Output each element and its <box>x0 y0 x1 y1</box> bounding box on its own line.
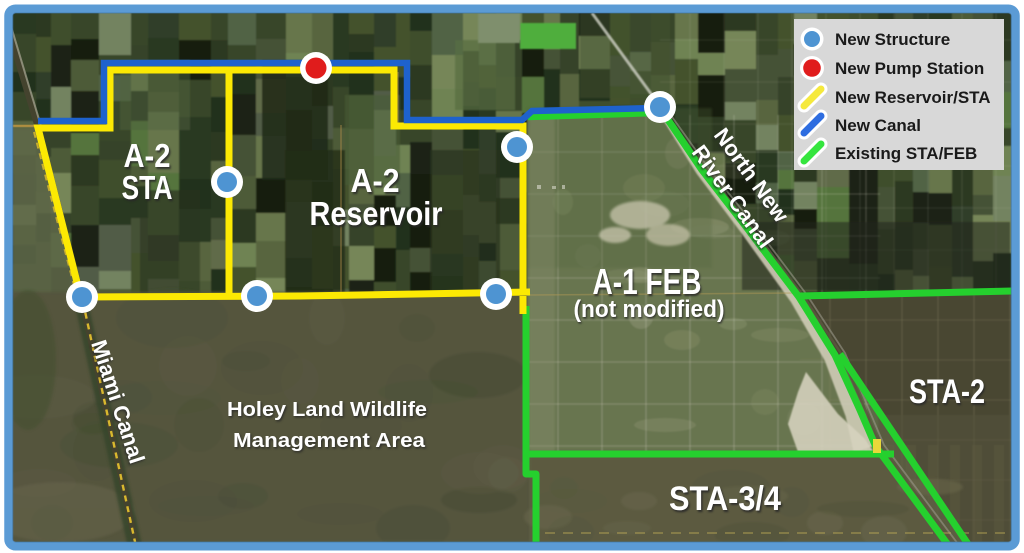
svg-text:Existing STA/FEB: Existing STA/FEB <box>835 144 977 163</box>
svg-text:New Reservoir/STA: New Reservoir/STA <box>835 88 991 107</box>
svg-text:STA-2: STA-2 <box>909 373 985 411</box>
svg-text:(not modified): (not modified) <box>574 296 725 323</box>
svg-text:Management Area: Management Area <box>233 430 426 452</box>
svg-text:Reservoir: Reservoir <box>310 195 443 232</box>
svg-text:STA-3/4: STA-3/4 <box>669 480 781 518</box>
svg-text:New Structure: New Structure <box>835 30 950 49</box>
svg-text:A-2: A-2 <box>351 162 400 199</box>
svg-text:New Pump Station: New Pump Station <box>835 59 984 78</box>
svg-text:Holey Land Wildlife: Holey Land Wildlife <box>227 399 427 421</box>
svg-text:New Canal: New Canal <box>835 116 921 135</box>
svg-text:STA: STA <box>122 169 173 206</box>
